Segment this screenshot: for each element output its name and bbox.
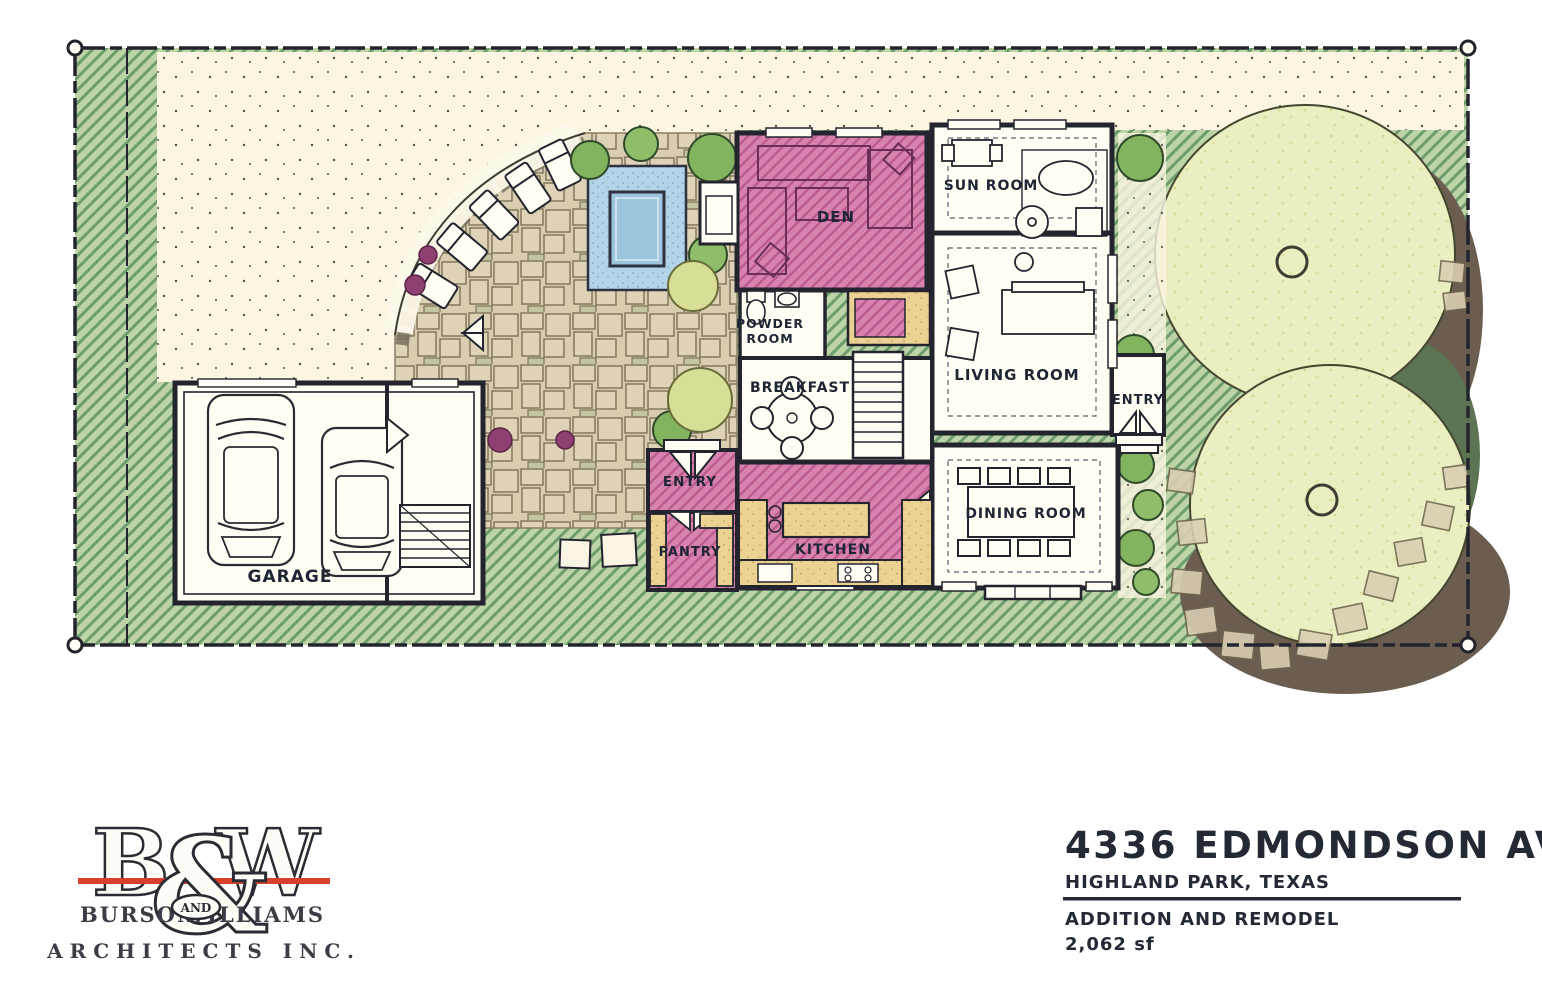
powder-room-label-2: ROOM	[746, 331, 793, 346]
sun-room-label: SUN ROOM	[944, 178, 1039, 194]
rear-entry-label: ENTRY	[1112, 393, 1164, 408]
garage-door-opening	[198, 379, 296, 387]
living-room-label: LIVING ROOM	[954, 366, 1079, 384]
den-bay-window	[700, 182, 738, 244]
dining-bay	[985, 586, 1081, 599]
boundary-corner-marker	[1461, 41, 1475, 55]
side-entry-stoop	[664, 440, 720, 451]
project-address: 4336 EDMONDSON AVE.	[1065, 824, 1542, 867]
title-rule	[1063, 897, 1461, 901]
kitchen-range	[838, 564, 878, 582]
stair-closet	[848, 291, 930, 345]
kitchen-label: KITCHEN	[795, 542, 871, 558]
spa-pool	[588, 166, 686, 290]
quarters-window	[412, 379, 458, 387]
architect-logo: B W & BURSON WILLIAMS AND ARCHITECTS INC…	[46, 809, 361, 964]
pantry-label: PANTRY	[659, 545, 722, 560]
logo-and: AND	[180, 901, 212, 915]
boundary-corner-marker	[68, 41, 82, 55]
project-scope: ADDITION AND REMODEL	[1065, 909, 1339, 930]
garage-stair	[400, 505, 470, 567]
breakfast-label: BREAKFAST	[750, 380, 850, 396]
rear-entry-steps	[1116, 435, 1162, 453]
house-stair	[853, 352, 903, 458]
site-plan-sheet: GARAGE	[0, 0, 1542, 999]
large-tree-1	[1155, 105, 1455, 405]
car-1	[208, 395, 294, 565]
logo-architects: ARCHITECTS INC.	[46, 939, 361, 963]
site-plan-drawing: GARAGE	[0, 0, 1542, 999]
den-label: DEN	[817, 208, 855, 226]
project-area: 2,062 sf	[1065, 934, 1155, 955]
project-city: HIGHLAND PARK, TEXAS	[1065, 872, 1330, 893]
kitchen-sink	[758, 564, 792, 582]
side-entry-label: ENTRY	[663, 474, 717, 490]
garage-label: GARAGE	[248, 567, 333, 587]
powder-room-label-1: POWDER	[736, 316, 804, 331]
dining-room-label: DINING ROOM	[965, 506, 1086, 522]
kitchen-island	[783, 503, 869, 537]
project-title-block: 4336 EDMONDSON AVE. HIGHLAND PARK, TEXAS…	[1063, 824, 1542, 955]
boundary-corner-marker	[68, 638, 82, 652]
boundary-corner-marker	[1461, 638, 1475, 652]
